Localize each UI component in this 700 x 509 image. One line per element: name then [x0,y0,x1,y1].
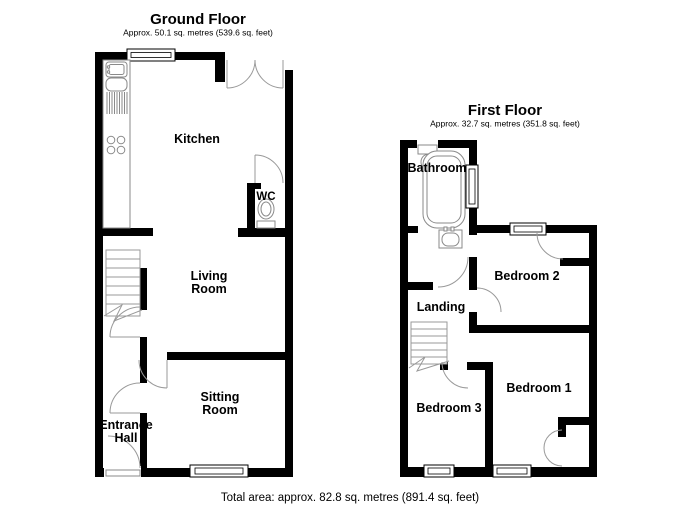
drainer-ribs [107,92,127,114]
total-area-text: Total area: approx. 82.8 sq. metres (891… [221,492,479,504]
bathroom-door [438,257,468,287]
bedroom3-window [424,465,454,477]
landing-wall-mid [469,257,477,290]
hall-door [110,383,140,413]
ground-floor-stairs [104,250,142,321]
ground-floor-area: Approx. 50.1 sq. metres (539.6 sq. feet) [123,28,273,38]
bathroom-window [466,165,478,208]
room-label-kitchen: Kitchen [174,132,220,146]
stairs-wall [140,268,147,310]
room-label-landing: Landing [417,300,466,314]
drainer-board [106,78,127,91]
bedroom2-window [510,223,546,235]
kitchen-living-wall [95,228,153,236]
wall-return-stub [215,52,225,82]
svg-text:Hall: Hall [115,431,138,445]
hob-burner [107,136,115,144]
bedroom2-bottom-wall [469,325,597,333]
french-door-left [227,60,255,88]
sitting-room-wall [167,352,293,360]
tap [451,227,454,231]
kitchen-window [127,49,175,61]
wc-left-wall [247,186,255,230]
exterior-wall-right [285,70,293,477]
room-label-bedroom1: Bedroom 1 [506,381,571,395]
hob-burner [117,136,125,144]
wall-nib-left [408,226,418,233]
bedroom1-window [493,465,531,477]
bedroom2-closet-door [537,233,563,259]
first-floor-title: First Floor [468,102,542,119]
first-floor-doors [438,233,563,466]
ground-floor-plan: Ground Floor Approx. 50.1 sq. metres (53… [95,11,293,479]
ground-floor-title: Ground Floor [150,11,246,28]
wardrobe-wall-v [558,417,566,437]
tap [107,66,109,68]
exterior-wall-left [400,140,408,477]
hob-burner [107,146,115,154]
front-door-leaf [106,470,140,476]
room-label-wc: WC [256,191,275,203]
exterior-wall-left [95,52,103,477]
tap [444,227,447,231]
room-label-sitting-room: Sitting [201,390,240,404]
room-label-entrance-hall: Entrance [99,418,153,432]
bedroom2-door [477,288,501,312]
room-label-bedroom2: Bedroom 2 [494,269,559,283]
tap [107,71,109,73]
bathroom-bottom-stub [400,282,433,290]
sitting-room-window [190,465,248,477]
first-floor-plan: First Floor Approx. 32.7 sq. metres (351… [400,102,597,477]
first-floor-stairs [409,322,449,371]
svg-text:Room: Room [191,282,226,296]
bedroom-divider-wall [485,366,493,467]
room-label-bedroom3: Bedroom 3 [416,401,481,415]
hob-burner [117,146,125,154]
wc-wall-nib [247,183,261,189]
bathroom-top-wall [400,140,477,148]
room-label-living-room: Living [191,269,228,283]
room-label-bathroom: Bathroom [407,161,466,175]
closet-wall [560,258,597,266]
first-floor-area: Approx. 32.7 sq. metres (351.8 sq. feet) [430,119,580,129]
floorplan-canvas: Ground Floor Approx. 50.1 sq. metres (53… [0,0,700,509]
french-door-right [255,60,283,88]
wc-bottom-wall [238,228,293,237]
wc-door [255,155,283,183]
svg-text:Room: Room [202,403,237,417]
toilet-base [257,221,275,228]
